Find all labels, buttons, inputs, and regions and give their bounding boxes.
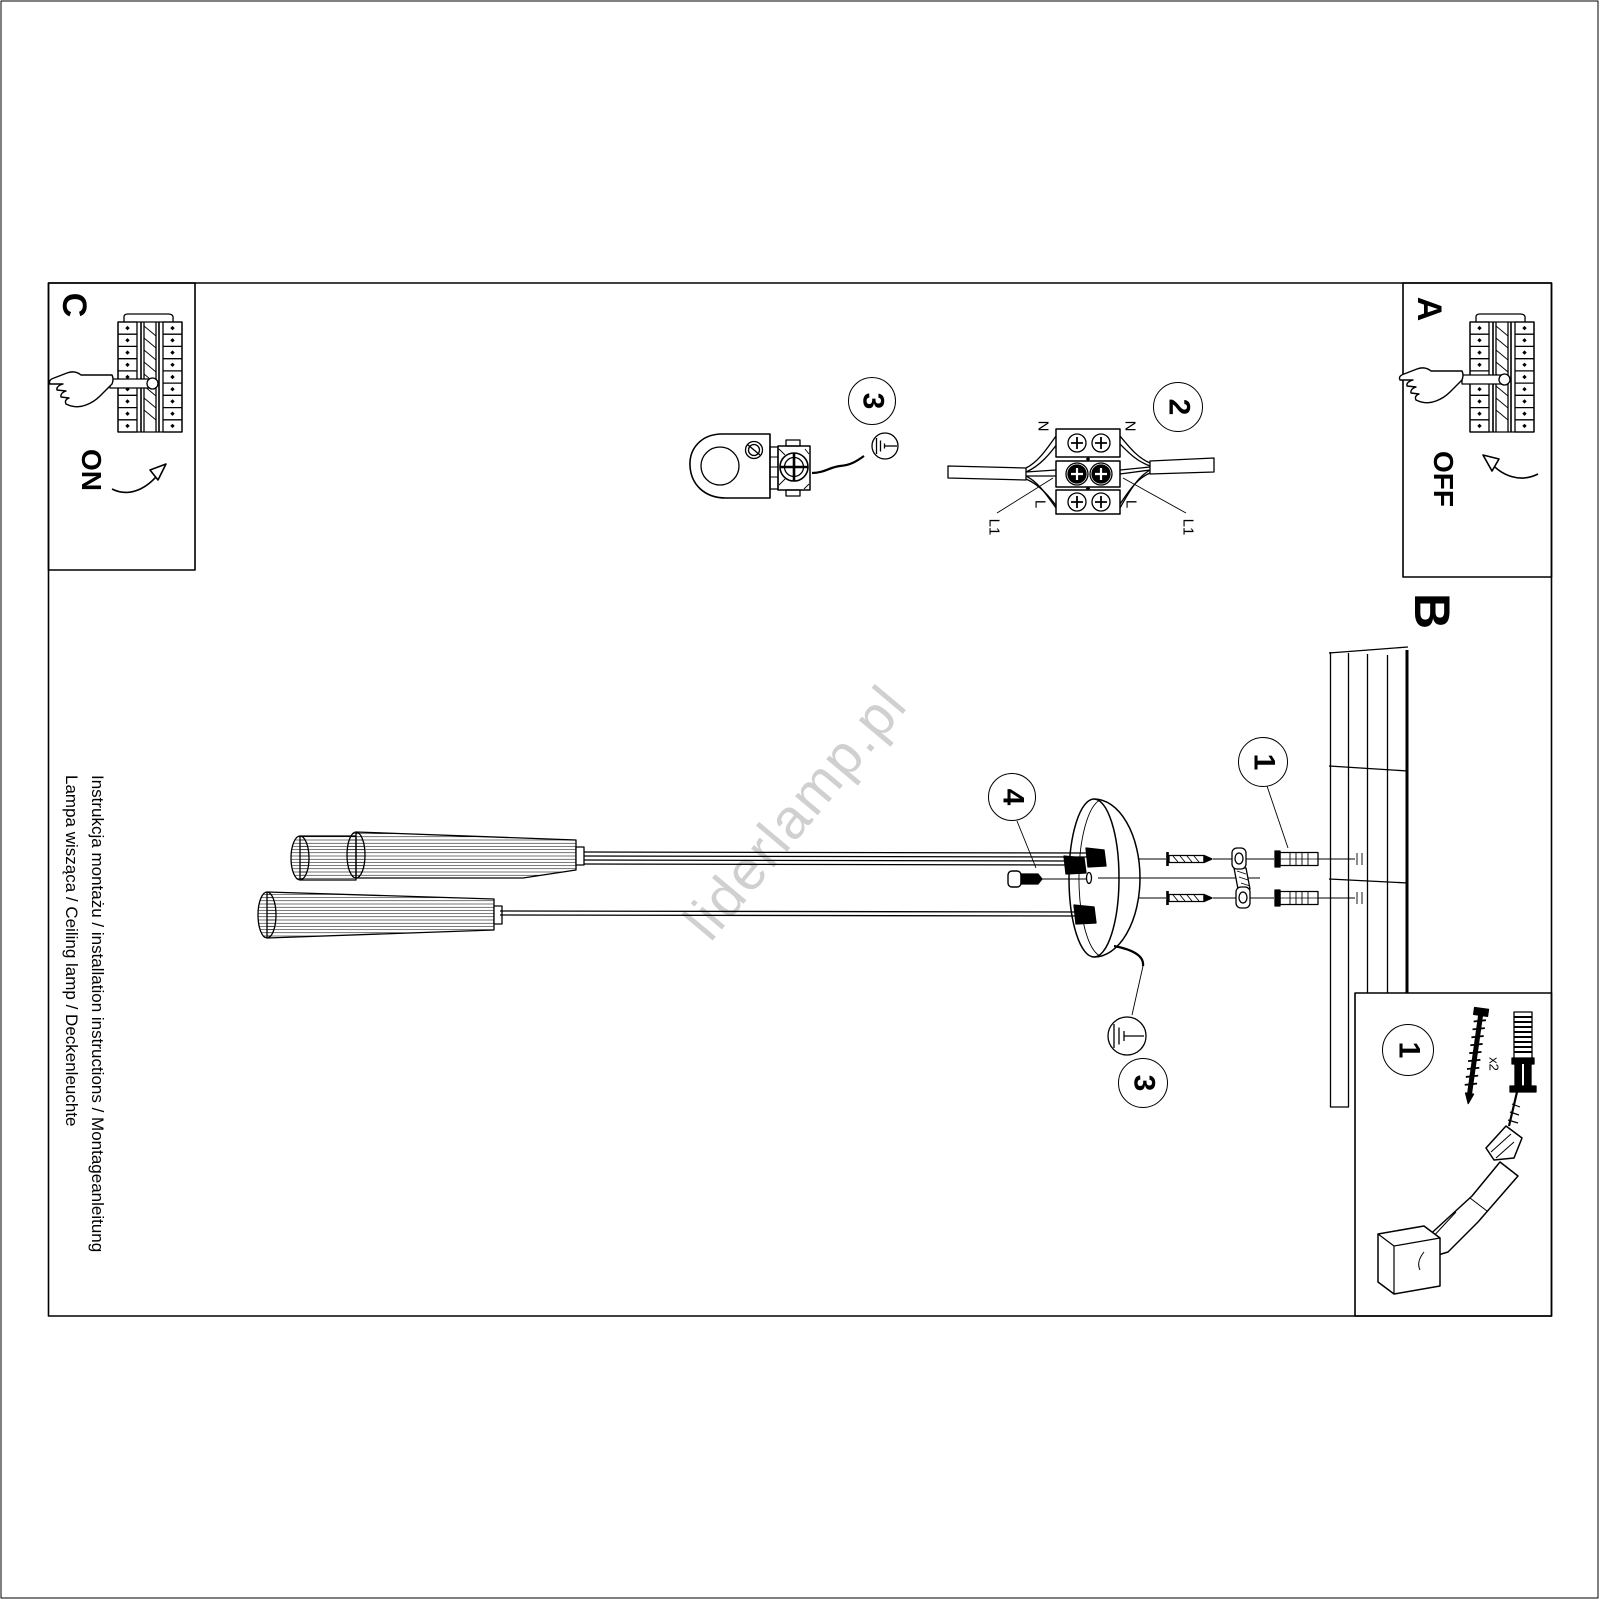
wire-label-n-right: N (1123, 421, 1138, 432)
wall-plugs (1267, 786, 1362, 906)
wire-label-l-left: L (1033, 500, 1048, 508)
canopy-wire (1114, 946, 1143, 966)
ceiling-hook-fixture (690, 434, 864, 498)
lamp-shades (258, 832, 584, 938)
side-caption-line2: Lampa wisząca / Ceiling lamp / Deckenleu… (58, 775, 84, 1305)
wire-label-l1-left: L1 (987, 519, 1002, 536)
parts-wall-plug (1510, 1012, 1536, 1092)
terminal-block (948, 429, 1214, 514)
breaker-panel-c (110, 314, 182, 432)
step1-leader (1267, 786, 1288, 848)
step-badge-3-bottom: 3 (1118, 1058, 1168, 1108)
ground-wire (812, 456, 864, 473)
wire-label-l-right: L (1124, 500, 1139, 508)
outer-frame (1, 1, 1598, 1598)
side-caption: Instrukcja montażu / installation instru… (58, 775, 110, 1305)
side-caption-line1: Instrukcja montażu / installation instru… (84, 775, 110, 1305)
main-frame (49, 283, 1552, 1316)
instruction-sheet: liderlamp.pl (0, 0, 1600, 1600)
ground-symbol-icon (872, 433, 898, 459)
screw-quantity-label: x2 (1488, 1057, 1501, 1071)
on-arrow (112, 464, 166, 492)
switch-off-label: OFF (1429, 451, 1457, 507)
panel-a-frame (1403, 283, 1552, 577)
step-badge-1-wall: 1 (1238, 737, 1288, 787)
off-arrow (1483, 455, 1538, 478)
drill-illustration (1378, 1092, 1522, 1294)
parts-screw (1461, 1007, 1488, 1104)
wire-label-n-left: N (1036, 421, 1051, 432)
section-b-label: B (1407, 593, 1457, 629)
wire-label-l1-right: L1 (1181, 519, 1196, 536)
section-c-label: C (57, 293, 91, 318)
switch-on-label: ON (77, 449, 105, 491)
breaker-panel-a (1462, 314, 1534, 432)
section-a-label: A (1412, 297, 1446, 322)
step-badge-4: 4 (988, 773, 1036, 821)
ground-symbol-icon (1108, 1017, 1146, 1055)
mounting-screws (1138, 852, 1274, 905)
step-badge-1-parts: 1 (1382, 1024, 1434, 1076)
pointing-hand-icon (50, 372, 114, 407)
mains-cable-right (1150, 458, 1214, 474)
mains-cable-left (948, 466, 1026, 480)
step-badge-2: 2 (1153, 382, 1203, 432)
pointing-hand-icon (1400, 368, 1464, 403)
diagram-artwork (0, 0, 1600, 1600)
step-badge-3-top: 3 (848, 377, 896, 425)
